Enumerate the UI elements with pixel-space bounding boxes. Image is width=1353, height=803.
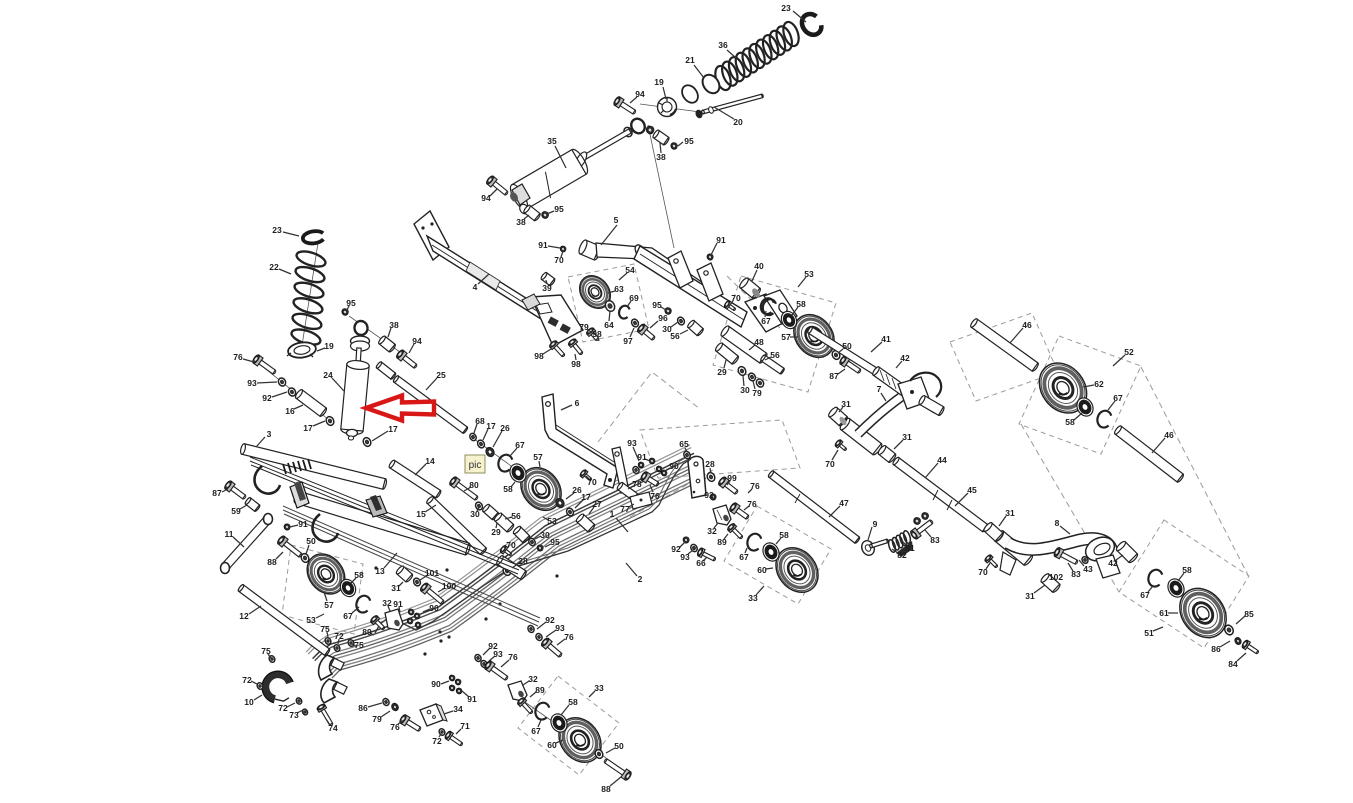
svg-text:96: 96 xyxy=(658,313,668,323)
svg-text:79: 79 xyxy=(372,714,382,724)
svg-text:67: 67 xyxy=(343,611,353,621)
svg-text:70: 70 xyxy=(587,477,597,487)
svg-text:45: 45 xyxy=(967,485,977,495)
svg-text:88: 88 xyxy=(267,557,277,567)
svg-text:30: 30 xyxy=(470,509,480,519)
svg-text:13: 13 xyxy=(375,566,385,576)
svg-text:98: 98 xyxy=(592,329,602,339)
svg-text:75: 75 xyxy=(261,646,271,656)
svg-text:67: 67 xyxy=(761,316,771,326)
svg-text:71: 71 xyxy=(460,721,470,731)
svg-text:93: 93 xyxy=(627,438,637,448)
svg-text:75: 75 xyxy=(354,640,364,650)
svg-text:39: 39 xyxy=(542,283,552,293)
svg-text:17: 17 xyxy=(303,423,313,433)
svg-text:64: 64 xyxy=(604,320,614,330)
svg-text:89: 89 xyxy=(717,537,727,547)
svg-text:20: 20 xyxy=(733,117,743,127)
svg-text:58: 58 xyxy=(568,697,578,707)
svg-text:15: 15 xyxy=(416,509,426,519)
svg-text:10: 10 xyxy=(244,697,254,707)
svg-text:47: 47 xyxy=(839,498,849,508)
svg-text:83: 83 xyxy=(930,535,940,545)
svg-text:87: 87 xyxy=(829,371,839,381)
svg-text:33: 33 xyxy=(594,683,604,693)
svg-text:57: 57 xyxy=(533,452,543,462)
svg-text:48: 48 xyxy=(754,337,764,347)
svg-text:56: 56 xyxy=(670,331,680,341)
svg-text:60: 60 xyxy=(547,740,557,750)
svg-text:70: 70 xyxy=(825,459,835,469)
svg-text:93: 93 xyxy=(680,552,690,562)
svg-text:98: 98 xyxy=(534,351,544,361)
svg-text:35: 35 xyxy=(547,136,557,146)
svg-text:41: 41 xyxy=(881,334,891,344)
svg-text:84: 84 xyxy=(1228,659,1238,669)
svg-text:11: 11 xyxy=(225,529,234,539)
svg-text:95: 95 xyxy=(652,300,662,310)
svg-text:17: 17 xyxy=(486,421,496,431)
svg-text:3: 3 xyxy=(267,429,272,439)
svg-text:31: 31 xyxy=(1025,591,1035,601)
svg-text:62: 62 xyxy=(1094,379,1104,389)
svg-text:91: 91 xyxy=(393,599,403,609)
svg-text:31: 31 xyxy=(841,399,851,409)
svg-text:59: 59 xyxy=(231,506,241,516)
svg-text:76: 76 xyxy=(233,352,243,362)
svg-text:pic: pic xyxy=(469,460,482,471)
svg-text:63: 63 xyxy=(614,284,624,294)
svg-text:85: 85 xyxy=(1244,609,1254,619)
svg-text:60: 60 xyxy=(757,565,767,575)
svg-text:8: 8 xyxy=(1055,518,1060,528)
svg-text:53: 53 xyxy=(804,269,814,279)
svg-text:79: 79 xyxy=(752,388,762,398)
svg-text:26: 26 xyxy=(500,423,510,433)
svg-text:30: 30 xyxy=(540,530,550,540)
svg-text:99: 99 xyxy=(727,473,737,483)
svg-text:9: 9 xyxy=(873,519,878,529)
svg-text:44: 44 xyxy=(937,455,947,465)
svg-text:53: 53 xyxy=(547,516,557,526)
svg-text:76: 76 xyxy=(508,652,518,662)
svg-text:95: 95 xyxy=(684,136,694,146)
svg-text:70: 70 xyxy=(978,567,988,577)
svg-text:17: 17 xyxy=(581,492,591,502)
svg-text:36: 36 xyxy=(718,40,728,50)
svg-text:7: 7 xyxy=(877,384,882,394)
svg-text:74: 74 xyxy=(328,723,338,733)
svg-text:58: 58 xyxy=(1182,565,1192,575)
svg-text:90: 90 xyxy=(431,679,441,689)
svg-text:23: 23 xyxy=(272,225,282,235)
svg-text:98: 98 xyxy=(571,359,581,369)
svg-text:92: 92 xyxy=(262,393,272,403)
svg-text:1: 1 xyxy=(610,509,615,519)
svg-text:17: 17 xyxy=(388,424,398,434)
svg-text:21: 21 xyxy=(685,55,695,65)
svg-text:6: 6 xyxy=(575,398,580,408)
svg-text:27: 27 xyxy=(592,499,602,509)
svg-text:94: 94 xyxy=(412,336,422,346)
svg-text:80: 80 xyxy=(469,480,479,490)
svg-text:72: 72 xyxy=(278,703,288,713)
svg-text:50: 50 xyxy=(614,741,624,751)
svg-text:57: 57 xyxy=(324,600,334,610)
svg-text:88: 88 xyxy=(601,784,611,794)
svg-text:89: 89 xyxy=(362,627,372,637)
svg-text:58: 58 xyxy=(779,530,789,540)
svg-text:56: 56 xyxy=(511,511,521,521)
svg-text:32: 32 xyxy=(528,674,538,684)
svg-text:14: 14 xyxy=(425,456,435,466)
svg-text:100: 100 xyxy=(442,581,456,591)
svg-text:32: 32 xyxy=(382,598,392,608)
svg-text:25: 25 xyxy=(436,370,446,380)
svg-text:52: 52 xyxy=(1124,347,1134,357)
svg-text:38: 38 xyxy=(516,217,526,227)
svg-text:58: 58 xyxy=(796,299,806,309)
svg-text:50: 50 xyxy=(842,341,852,351)
svg-text:95: 95 xyxy=(346,298,356,308)
svg-text:58: 58 xyxy=(503,484,513,494)
svg-text:42: 42 xyxy=(900,353,910,363)
svg-text:82: 82 xyxy=(897,550,907,560)
svg-text:93: 93 xyxy=(247,378,257,388)
svg-text:75: 75 xyxy=(320,624,330,634)
svg-text:31: 31 xyxy=(391,583,401,593)
svg-text:57: 57 xyxy=(781,332,791,342)
svg-text:19: 19 xyxy=(324,341,334,351)
svg-text:28: 28 xyxy=(518,556,528,566)
svg-text:87: 87 xyxy=(212,488,222,498)
svg-text:65: 65 xyxy=(679,439,689,449)
svg-text:12: 12 xyxy=(239,611,249,621)
svg-text:54: 54 xyxy=(625,265,635,275)
svg-text:19: 19 xyxy=(654,77,664,87)
svg-text:29: 29 xyxy=(717,367,727,377)
svg-text:90: 90 xyxy=(669,461,679,471)
svg-text:69: 69 xyxy=(629,293,639,303)
svg-text:67: 67 xyxy=(515,440,525,450)
svg-text:46: 46 xyxy=(1164,430,1174,440)
svg-text:94: 94 xyxy=(481,193,491,203)
svg-text:31: 31 xyxy=(902,432,912,442)
svg-text:5: 5 xyxy=(614,215,619,225)
svg-text:67: 67 xyxy=(531,726,541,736)
svg-text:101: 101 xyxy=(425,568,439,578)
svg-text:73: 73 xyxy=(289,710,299,720)
svg-text:53: 53 xyxy=(306,615,316,625)
svg-text:76: 76 xyxy=(750,481,760,491)
svg-text:92: 92 xyxy=(545,615,555,625)
svg-text:93: 93 xyxy=(493,649,503,659)
svg-text:58: 58 xyxy=(354,570,364,580)
svg-text:31: 31 xyxy=(1005,508,1015,518)
svg-text:72: 72 xyxy=(432,736,442,746)
svg-text:56: 56 xyxy=(770,350,780,360)
svg-text:40: 40 xyxy=(754,261,764,271)
svg-text:34: 34 xyxy=(453,704,463,714)
svg-text:102: 102 xyxy=(1049,572,1063,582)
svg-text:70: 70 xyxy=(506,540,516,550)
svg-text:61: 61 xyxy=(1159,608,1169,618)
svg-text:76: 76 xyxy=(390,722,400,732)
svg-text:76: 76 xyxy=(564,632,574,642)
svg-text:91: 91 xyxy=(467,694,477,704)
svg-text:46: 46 xyxy=(1022,320,1032,330)
svg-text:72: 72 xyxy=(334,631,344,641)
svg-text:67: 67 xyxy=(1113,393,1123,403)
svg-text:28: 28 xyxy=(705,459,715,469)
svg-text:72: 72 xyxy=(242,675,252,685)
svg-text:91: 91 xyxy=(716,235,726,245)
svg-text:30: 30 xyxy=(740,385,750,395)
svg-text:24: 24 xyxy=(323,370,333,380)
svg-text:38: 38 xyxy=(656,152,666,162)
svg-text:91: 91 xyxy=(298,519,308,529)
svg-text:23: 23 xyxy=(781,3,791,13)
svg-text:29: 29 xyxy=(491,527,501,537)
svg-text:79: 79 xyxy=(579,322,589,332)
svg-text:92: 92 xyxy=(704,490,714,500)
svg-text:38: 38 xyxy=(389,320,399,330)
svg-text:33: 33 xyxy=(748,593,758,603)
svg-text:86: 86 xyxy=(358,703,368,713)
svg-text:66: 66 xyxy=(696,558,706,568)
svg-text:91: 91 xyxy=(538,240,548,250)
svg-text:43: 43 xyxy=(1083,564,1093,574)
svg-text:89: 89 xyxy=(535,685,545,695)
svg-text:76: 76 xyxy=(747,499,757,509)
svg-text:42: 42 xyxy=(1108,558,1118,568)
svg-text:22: 22 xyxy=(269,262,279,272)
svg-text:67: 67 xyxy=(739,552,749,562)
svg-text:76: 76 xyxy=(650,491,660,501)
svg-text:83: 83 xyxy=(1071,569,1081,579)
svg-text:78: 78 xyxy=(632,479,642,489)
svg-text:68: 68 xyxy=(475,416,485,426)
svg-text:97: 97 xyxy=(623,336,633,346)
svg-text:2: 2 xyxy=(638,574,643,584)
svg-text:70: 70 xyxy=(731,293,741,303)
svg-text:95: 95 xyxy=(554,204,564,214)
svg-text:94: 94 xyxy=(635,89,645,99)
svg-text:77: 77 xyxy=(620,504,630,514)
svg-text:90: 90 xyxy=(429,603,439,613)
svg-text:32: 32 xyxy=(707,526,717,536)
svg-text:86: 86 xyxy=(1211,644,1221,654)
svg-text:16: 16 xyxy=(285,406,295,416)
svg-text:95: 95 xyxy=(550,537,560,547)
svg-text:4: 4 xyxy=(473,282,478,292)
svg-text:67: 67 xyxy=(1140,590,1150,600)
svg-text:50: 50 xyxy=(306,536,316,546)
svg-text:70: 70 xyxy=(554,255,564,265)
svg-text:51: 51 xyxy=(1144,628,1154,638)
svg-text:58: 58 xyxy=(1065,417,1075,427)
